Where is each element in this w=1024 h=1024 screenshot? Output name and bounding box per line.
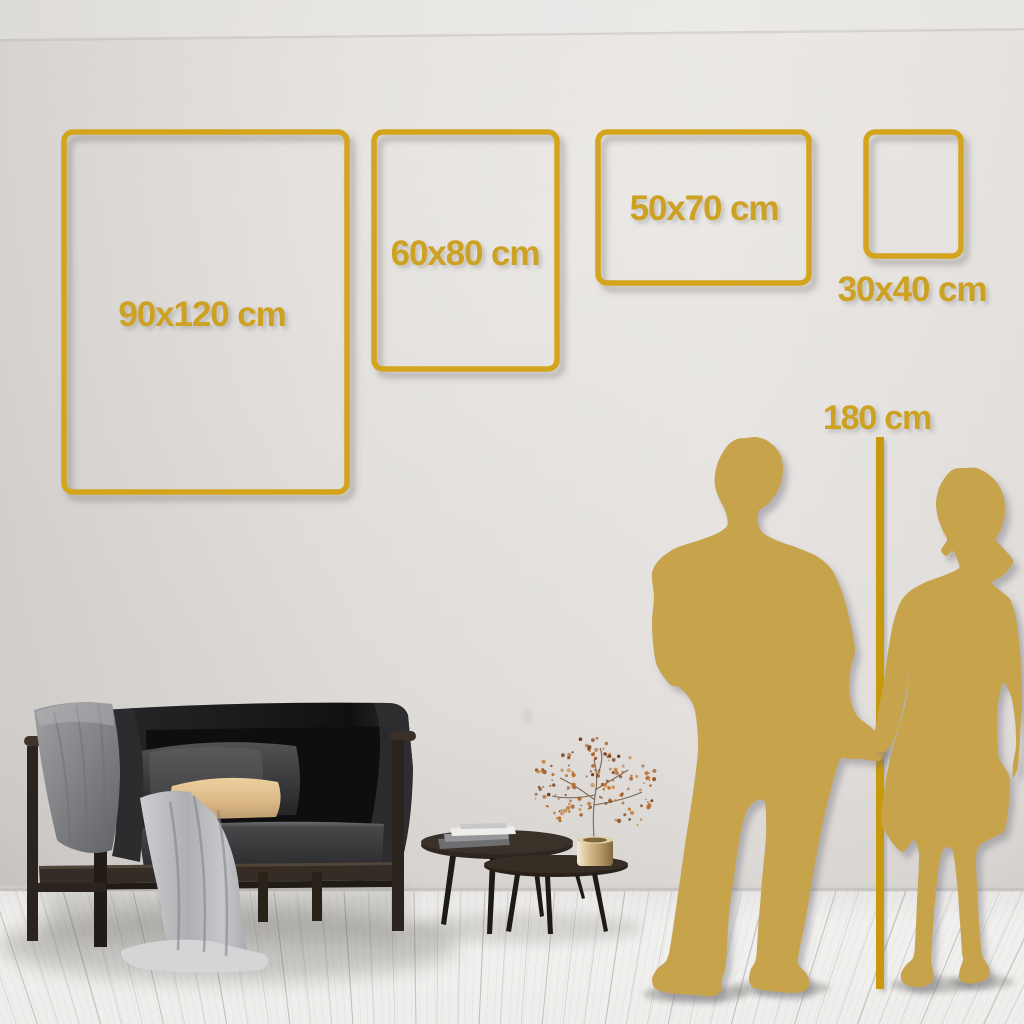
svg-text:90x120 cm: 90x120 cm [118, 295, 285, 334]
svg-text:60x80 cm: 60x80 cm [391, 234, 540, 273]
svg-text:180 cm: 180 cm [823, 399, 931, 437]
svg-text:50x70 cm: 50x70 cm [630, 189, 779, 228]
svg-text:30x40 cm: 30x40 cm [838, 270, 987, 309]
